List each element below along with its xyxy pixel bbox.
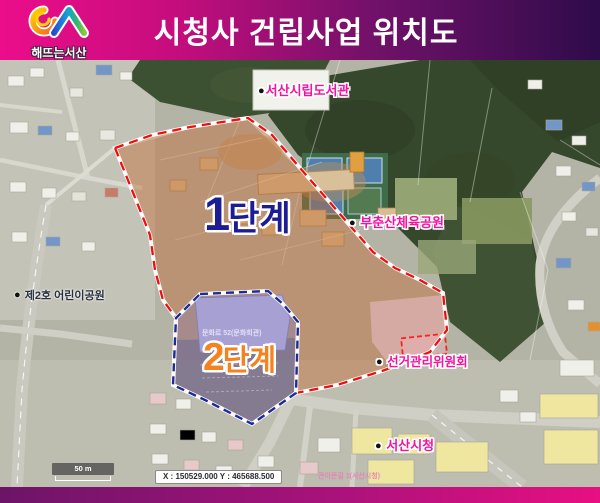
road-address-city-hall: 관아문길 1(서산시청) (318, 471, 380, 481)
phase2-label: 2단계 (203, 338, 276, 377)
map-area: ●서산시립도서관 ● 부춘산체육공원 ● 선거관리위원회 ● 서산시청 ● 제2… (0, 60, 600, 487)
coordinate-readout: X : 150529.000 Y : 465688.500 (155, 470, 282, 484)
poi-dot: ● (258, 85, 265, 97)
scale-bar-text: 50 m (52, 463, 114, 475)
poi-dot: ● (375, 440, 382, 452)
sunrise-seosan-logo-icon (12, 3, 106, 41)
map-canvas (0, 60, 600, 487)
scale-bar: 50 m (52, 463, 114, 481)
poi-dot: ● (14, 289, 21, 301)
label-city-library: ●서산시립도서관 (258, 80, 349, 99)
poi-dot: ● (376, 356, 383, 368)
page-title: 시청사 건립사업 위치도 (154, 8, 459, 52)
road-address-culture-center: 문화로 52(문화회관) (202, 328, 261, 338)
label-election-commission: ● 선거관리위원회 (376, 351, 468, 370)
scale-bar-tick (55, 476, 111, 481)
label-city-hall: ● 서산시청 (375, 435, 434, 454)
footer-bar (0, 487, 600, 503)
label-sports-park: ● 부춘산체육공원 (349, 212, 444, 231)
label-children-park: ● 제2호 어린이공원 (14, 287, 105, 303)
header-bar: 해뜨는서산 시청사 건립사업 위치도 (0, 0, 600, 60)
logo-slogan: 해뜨는서산 (12, 44, 106, 61)
phase1-label: 1단계 (204, 190, 291, 237)
seosan-city-logo: 해뜨는서산 (12, 3, 106, 57)
poi-dot: ● (349, 217, 356, 229)
location-map-poster: 해뜨는서산 시청사 건립사업 위치도 (0, 0, 600, 503)
